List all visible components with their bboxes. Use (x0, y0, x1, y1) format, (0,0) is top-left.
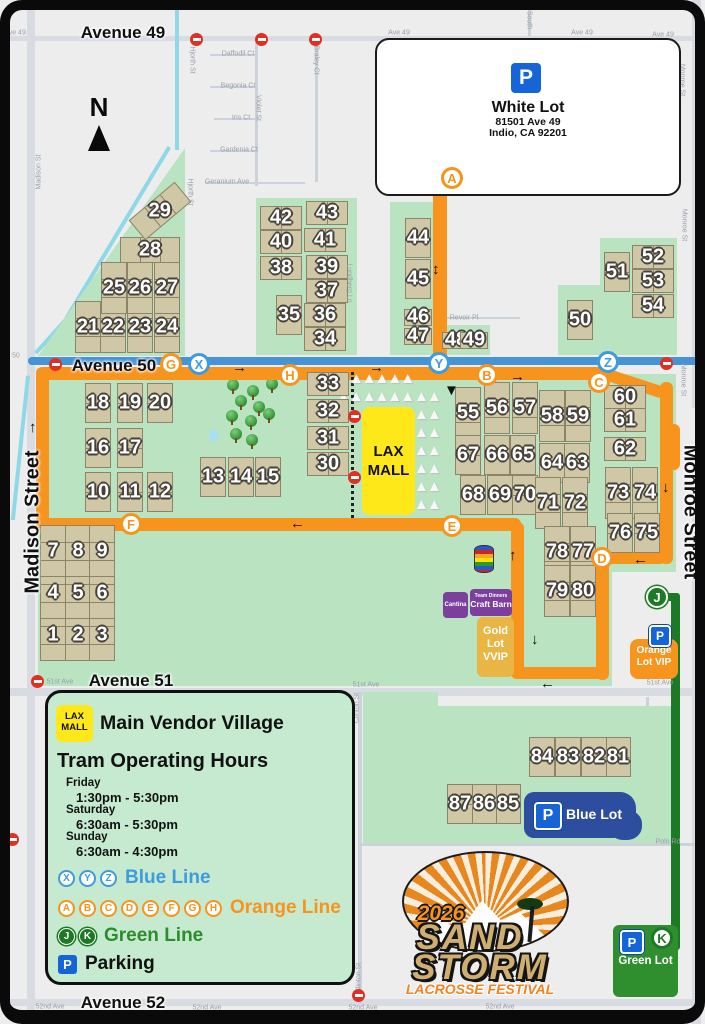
field-86: 86 (471, 784, 497, 824)
direction-arrow-icon: ↑ (29, 420, 37, 435)
cantina-box: Cantina (443, 592, 468, 618)
blue-line-label: Blue Line (125, 867, 211, 889)
schedule-time: 6:30am - 5:30pm (76, 817, 178, 832)
schedule-time: 6:30am - 4:30pm (76, 844, 178, 859)
field-number: 23 (129, 317, 151, 337)
legend-stop-E: E (142, 900, 159, 917)
field-74: 74 (632, 467, 658, 519)
green-lot-label: Green Lot (613, 955, 678, 967)
orange-lot-line2: Lot VIP (630, 657, 678, 669)
no-entry-icon (31, 675, 44, 688)
field-53: 53 (632, 269, 674, 293)
field-13: 13 (200, 457, 226, 497)
tree-icon (226, 410, 238, 422)
direction-arrow-icon: ← (633, 552, 648, 567)
legend-parking-row: P Parking (58, 953, 155, 975)
field-31: 31 (307, 426, 349, 450)
tram-stop-Y: Y (428, 352, 450, 374)
field-56: 56 (484, 382, 510, 434)
field-25: 25 (101, 262, 127, 314)
field-32: 32 (307, 399, 349, 423)
schedule-time: 1:30pm - 5:30pm (76, 790, 179, 805)
field-27: 27 (154, 262, 180, 314)
direction-arrow-icon: ↓ (662, 480, 670, 495)
field-number: 45 (407, 269, 429, 289)
field-number: 36 (314, 305, 336, 325)
field-number: 40 (270, 232, 292, 252)
tree-icon (246, 434, 258, 446)
field-number: 37 (316, 281, 338, 301)
street-label: Violet St (255, 95, 262, 121)
logo-festival: LACROSSE FESTIVAL (380, 982, 580, 996)
road-clinton-st (358, 692, 362, 1004)
street-label: Daffodil Ct (222, 51, 255, 58)
tram-stop-X: X (188, 353, 210, 375)
north-arrow-icon (88, 125, 110, 151)
field-11: 11 (117, 472, 143, 512)
field-number: 80 (572, 581, 594, 601)
gold-lot-line2: Lot (477, 638, 514, 651)
field-number: 34 (314, 329, 336, 349)
field-40: 40 (260, 230, 302, 254)
field-number: 62 (614, 439, 636, 459)
field-number: 11 (119, 482, 140, 502)
field-58: 58 (539, 390, 565, 442)
field-62: 62 (604, 437, 646, 461)
field-number: 7 (47, 541, 58, 561)
field-51: 51 (604, 252, 630, 292)
tree-icon (227, 379, 239, 391)
field-number: 10 (87, 482, 109, 502)
tram-stop-H: H (279, 364, 301, 386)
parking-label: Parking (85, 953, 155, 975)
field-number: 57 (514, 398, 536, 418)
white-lot-title: White Lot (377, 99, 679, 117)
field-number: 71 (537, 493, 559, 513)
field-number: 20 (149, 393, 171, 413)
field-number: 59 (567, 406, 589, 426)
schedule-day: Friday (66, 777, 101, 789)
direction-arrow-icon: → (510, 369, 525, 384)
field-number: 73 (607, 483, 629, 503)
tram-stop-Z: Z (597, 351, 619, 373)
tree-icon (230, 428, 242, 440)
street-label: Gardenia Ct (220, 147, 258, 154)
street-label: 51st Ave (353, 682, 380, 689)
field-number: 26 (129, 278, 151, 298)
canal-segment (175, 4, 179, 150)
tree-icon (245, 415, 257, 427)
field-47: 47 (404, 328, 432, 345)
field-number: 12 (149, 482, 171, 502)
tram-stop-C: C (588, 371, 610, 393)
field-number: 84 (531, 747, 553, 767)
legend-orange-line-row: ABCDEFGHOrange Line (58, 897, 341, 919)
field-number: 76 (609, 523, 631, 543)
field-number: 68 (462, 485, 484, 505)
field-number: 82 (583, 747, 605, 767)
parking-icon: P (534, 802, 562, 830)
field-number: 16 (87, 438, 109, 458)
street-name-madison-street: Madison Street (22, 450, 45, 593)
field-16: 16 (85, 428, 111, 468)
field-15: 15 (255, 457, 281, 497)
field-19: 19 (117, 383, 143, 423)
street-label: 52nd Ave (35, 1004, 64, 1011)
field-10: 10 (85, 472, 111, 512)
field-85: 85 (495, 784, 521, 824)
field-number: 22 (102, 317, 124, 337)
field-46: 46 (404, 309, 432, 326)
field-number: 86 (473, 794, 495, 814)
street-label: South (526, 11, 533, 29)
field-26: 26 (127, 262, 153, 314)
legend-stop-A: A (58, 900, 75, 917)
field-68: 68 (460, 475, 486, 515)
legend-stop-K: K (79, 928, 96, 945)
field-number: 38 (270, 258, 292, 278)
field-number: 5 (72, 583, 83, 603)
field-number: 49 (463, 330, 485, 350)
street-label: Hjorth St (189, 46, 196, 73)
street-label: Monroe St (681, 209, 688, 241)
field-number: 74 (634, 483, 656, 503)
field-number: 21 (77, 317, 99, 337)
field-number: 50 (569, 310, 591, 330)
craft-barn-box: Team Dinners Craft Barn (470, 589, 512, 616)
street-name-monroe-street: Monroe Street (679, 445, 702, 579)
field-66: 66 (484, 435, 510, 475)
field-28: 28 (120, 237, 180, 263)
field-21: 21 (75, 301, 101, 353)
field-number: 85 (497, 794, 519, 814)
field-number: 15 (257, 467, 279, 487)
field-number: 25 (103, 278, 125, 298)
orange-line-label: Orange Line (230, 897, 341, 919)
field-number: 53 (642, 271, 664, 291)
direction-arrow-icon: ← (540, 676, 555, 691)
north-label: N (88, 92, 110, 123)
field-69: 69 (487, 475, 513, 515)
field-number: 1 (47, 625, 58, 645)
lax-mall-legend-icon: LAX MALL (56, 705, 93, 742)
field-82: 82 (581, 737, 607, 777)
field-57: 57 (512, 382, 538, 434)
pond (209, 429, 218, 442)
street-name-avenue-50: Avenue 50 (72, 356, 156, 376)
field-number: 81 (607, 747, 629, 767)
parking-icon: P (511, 63, 541, 93)
field-76: 76 (607, 513, 633, 553)
legend-stop-C: C (100, 900, 117, 917)
tram-stop-E: E (441, 515, 463, 537)
direction-arrow-icon: ← (290, 516, 305, 531)
field-79: 79 (544, 565, 570, 617)
field-number: 44 (407, 228, 429, 248)
orange-line-right-vertical (660, 382, 673, 564)
blue-lot: P Blue Lot (524, 792, 636, 838)
no-entry-icon (352, 989, 365, 1002)
field-number: 13 (202, 467, 224, 487)
field-number: 47 (407, 326, 429, 346)
street-label: e 50 (6, 353, 20, 360)
field-number: 72 (564, 493, 586, 513)
green-line-label: Green Line (104, 925, 203, 947)
no-entry-icon (660, 357, 673, 370)
field-number: 61 (614, 410, 636, 430)
field-42: 42 (260, 206, 302, 230)
field-number: 29 (149, 201, 171, 221)
parking-icon: P (620, 930, 644, 954)
blue-lot-label: Blue Lot (566, 806, 622, 822)
schedule-day: Saturday (66, 804, 115, 816)
gold-lot-line1: Gold (477, 625, 514, 638)
no-entry-icon (190, 33, 203, 46)
street-label: Ave 49 (388, 30, 410, 37)
field-number: 67 (457, 445, 479, 465)
tree-icon (235, 395, 247, 407)
field-number: 39 (316, 257, 338, 277)
legend-green-line-row: JKGreen Line (58, 925, 203, 947)
tram-hours-title: Tram Operating Hours (57, 750, 268, 773)
street-label: Ave 49 (4, 30, 26, 37)
field-number: 52 (642, 247, 664, 267)
white-lot-city: Indio, CA 92201 (377, 127, 679, 139)
field-number: 17 (119, 438, 141, 458)
field-number: 60 (614, 387, 636, 407)
north-arrow: N (88, 92, 110, 151)
field-number: 33 (317, 374, 339, 394)
field-34: 34 (304, 327, 346, 351)
legend-stop-J: J (58, 928, 75, 945)
field-12: 12 (147, 472, 173, 512)
field-number: 31 (317, 428, 339, 448)
field-37: 37 (306, 279, 348, 303)
orange-line-d-vertical (596, 556, 609, 680)
no-entry-icon (348, 410, 361, 423)
field-number: 55 (457, 403, 479, 423)
street-label: Revoir Pl (450, 315, 478, 322)
direction-arrow-icon: ↑ (509, 548, 517, 563)
street-label: Braley Ct (313, 46, 320, 75)
field-45: 45 (405, 259, 431, 299)
striped-tower-icon (474, 545, 494, 573)
street-label: 51st Ave (647, 680, 674, 687)
tram-stop-B: B (476, 364, 498, 386)
street-name-avenue-49: Avenue 49 (81, 23, 165, 43)
street-label: Ave 49 (571, 30, 593, 37)
field-number: 63 (566, 453, 588, 473)
field-18: 18 (85, 383, 111, 423)
field-number: 75 (636, 523, 658, 543)
field-81: 81 (605, 737, 631, 777)
tram-stop-J: J (646, 586, 668, 608)
orange-line-bottom (511, 667, 606, 679)
field-84: 84 (529, 737, 555, 777)
festival-map: N P White Lot 81501 Ave 49 Indio, CA 922… (0, 0, 705, 1024)
field-number: 8 (72, 541, 83, 561)
logo-storm: STORM (380, 950, 580, 985)
field-71: 71 (535, 477, 561, 529)
field-80: 80 (570, 565, 596, 617)
street-name-avenue-51: Avenue 51 (89, 671, 173, 691)
field-38: 38 (260, 256, 302, 280)
entrance-marker-icon: ▼ (444, 383, 459, 398)
tram-stop-K: K (651, 927, 673, 949)
field-52: 52 (632, 245, 674, 269)
field-number: 24 (156, 317, 178, 337)
field-72: 72 (562, 477, 588, 529)
tram-stop-F: F (120, 513, 142, 535)
legend-stop-B: B (79, 900, 96, 917)
field-number: 9 (96, 541, 107, 561)
legend-stop-Y: Y (79, 870, 96, 887)
field-number: 56 (486, 398, 508, 418)
direction-arrow-icon: ↓ (531, 632, 539, 647)
field-44: 44 (405, 218, 431, 258)
field-number: 66 (486, 445, 508, 465)
tram-stop-A: A (441, 167, 463, 189)
field-17: 17 (117, 428, 143, 468)
no-entry-icon (49, 358, 62, 371)
vendor-tents-right: ▲▲ ▲▲ ▲▲ ▲▲ ▲▲ ▲▲ ▲▲ (414, 388, 440, 514)
field-49: 49 (460, 332, 488, 349)
field-8: 8 (65, 525, 91, 577)
field-number: 35 (278, 305, 300, 325)
field-36: 36 (304, 303, 346, 327)
field-number: 43 (316, 203, 338, 223)
field-33: 33 (307, 372, 349, 396)
lax-mall-line1: LAX (374, 442, 404, 462)
cantina-label: Cantina (443, 602, 468, 608)
tree-icon (263, 408, 275, 420)
field-55: 55 (455, 387, 481, 439)
field-number: 14 (230, 467, 252, 487)
field-50: 50 (567, 300, 593, 340)
direction-arrow-icon: ↕ (432, 262, 440, 277)
field-30: 30 (307, 452, 349, 476)
street-label: 52nd Ave (348, 1005, 377, 1012)
field-number: 28 (139, 240, 161, 260)
road-polo-rd (358, 843, 705, 846)
no-entry-icon (348, 471, 361, 484)
field-9: 9 (89, 525, 115, 577)
field-number: 2 (72, 625, 83, 645)
craft-barn-label: Craft Barn (470, 599, 512, 609)
legend-stop-D: D (121, 900, 138, 917)
field-67: 67 (455, 435, 481, 475)
legend-stop-H: H (205, 900, 222, 917)
field-number: 78 (546, 542, 568, 562)
green-area-clinton-strip (363, 692, 438, 843)
field-number: 70 (514, 485, 536, 505)
field-number: 41 (314, 230, 336, 250)
direction-arrow-icon: → (232, 360, 247, 375)
street-label: Madison St (36, 154, 43, 189)
street-label: 52nd Ave (192, 1005, 221, 1012)
tree-icon (247, 385, 259, 397)
field-number: 58 (541, 406, 563, 426)
field-number: 19 (119, 393, 141, 413)
field-75: 75 (634, 513, 660, 553)
field-number: 32 (317, 401, 339, 421)
field-43: 43 (306, 201, 348, 225)
street-label: Lundberg Ln (346, 263, 353, 302)
field-number: 6 (96, 583, 107, 603)
lax-legend-line2: MALL (56, 722, 93, 733)
legend-stop-Z: Z (100, 870, 117, 887)
tram-stop-D: D (591, 547, 613, 569)
gold-lot-vvip: Gold Lot VVIP (477, 617, 514, 677)
lax-legend-line1: LAX (56, 711, 93, 722)
field-number: 46 (407, 307, 429, 327)
field-number: 79 (546, 581, 568, 601)
street-label: 52nd Ave (485, 1004, 514, 1011)
legend-panel: LAX MALL Main Vendor Village Tram Operat… (45, 690, 355, 985)
field-39: 39 (306, 255, 348, 279)
street-name-avenue-52: Avenue 52 (81, 993, 165, 1013)
parking-icon: P (58, 955, 77, 974)
field-number: 51 (606, 262, 628, 282)
gold-lot-line3: VVIP (477, 651, 514, 664)
field-14: 14 (228, 457, 254, 497)
legend-stop-F: F (163, 900, 180, 917)
field-number: 64 (541, 453, 563, 473)
vendor-village-title: Main Vendor Village (100, 712, 284, 735)
no-entry-icon (255, 33, 268, 46)
field-35: 35 (276, 295, 302, 335)
street-label: Iris Ct (232, 115, 250, 122)
field-60: 60 (604, 385, 646, 409)
direction-arrow-icon: → (369, 360, 384, 375)
field-number: 18 (87, 393, 109, 413)
field-20: 20 (147, 383, 173, 423)
field-54: 54 (632, 294, 674, 318)
lax-mall-line2: MALL (368, 461, 410, 481)
field-number: 4 (47, 583, 58, 603)
field-number: 65 (512, 445, 534, 465)
field-65: 65 (510, 435, 536, 475)
field-61: 61 (604, 408, 646, 432)
street-label: Begonia Ct (221, 83, 256, 90)
field-83: 83 (555, 737, 581, 777)
street-label: Monroe St (680, 364, 687, 396)
parking-icon: P (649, 625, 671, 647)
tram-stop-G: G (160, 353, 182, 375)
no-entry-icon (309, 33, 322, 46)
no-entry-icon (6, 833, 19, 846)
field-number: 83 (557, 747, 579, 767)
legend-stop-X: X (58, 870, 75, 887)
lax-mall: LAX MALL (362, 407, 415, 515)
field-number: 3 (96, 625, 107, 645)
field-87: 87 (447, 784, 473, 824)
street-label: 51st Ave (47, 679, 74, 686)
field-number: 27 (156, 278, 178, 298)
field-number: 54 (642, 296, 664, 316)
schedule-day: Sunday (66, 831, 108, 843)
field-73: 73 (605, 467, 631, 519)
field-number: 30 (317, 454, 339, 474)
field-number: 69 (489, 485, 511, 505)
legend-stop-G: G (184, 900, 201, 917)
street-label: Polo Rd (656, 839, 681, 846)
field-59: 59 (565, 390, 591, 442)
street-label: Hjorth St (187, 178, 194, 205)
white-lot-box: P White Lot 81501 Ave 49 Indio, CA 92201 (375, 38, 681, 196)
field-41: 41 (304, 228, 346, 252)
field-number: 42 (270, 208, 292, 228)
